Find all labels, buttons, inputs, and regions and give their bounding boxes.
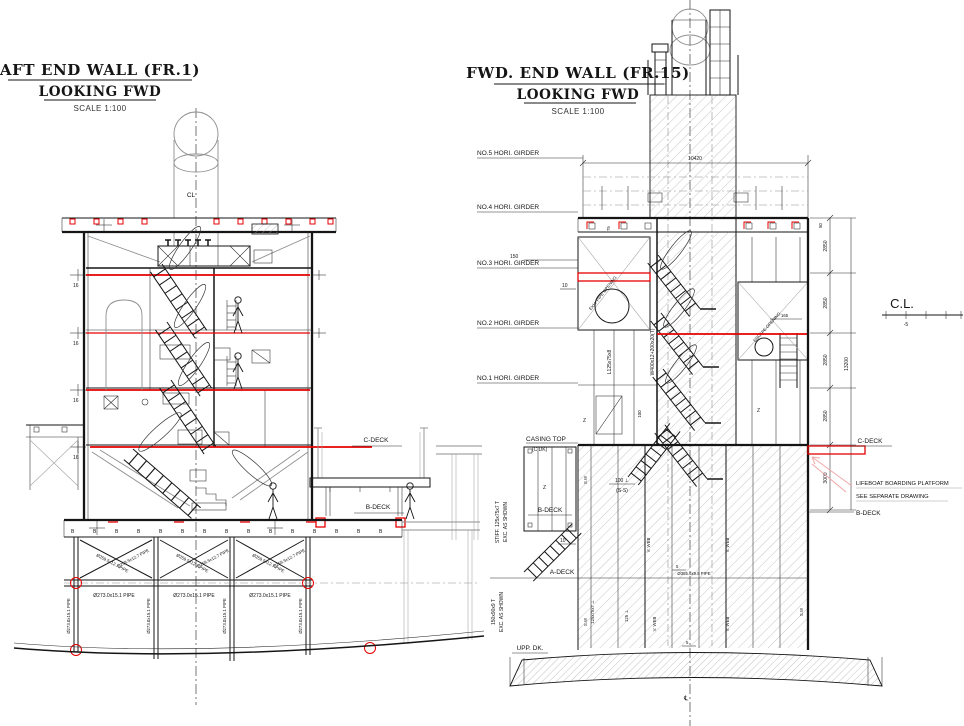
- pipe-label: Ø273.0x15.1 PIPE: [249, 593, 291, 599]
- dim-tier: 2850: [823, 297, 829, 308]
- left-title: AFT END WALL (FR.1): [0, 61, 200, 79]
- dim-100: 100: [637, 410, 642, 418]
- stair-flights: [124, 264, 226, 518]
- casing-top-sub: (C DK): [532, 447, 548, 453]
- plate-thickness: 16: [73, 283, 79, 289]
- left-lower-panel: L125x75x8 W400x12+200x20(T) 100 Z: [583, 328, 656, 445]
- beam-mark: B: [71, 529, 75, 535]
- plate-thickness: 16: [73, 341, 79, 347]
- member-label: V. WEB: [725, 538, 730, 553]
- stiffener-note: EXC. AS SHOWN: [499, 592, 505, 632]
- angle-label: L125x75x8: [607, 350, 613, 375]
- member-label: V. WEB: [646, 538, 651, 553]
- pipe-label: Ø273.0x15.1 PIPE: [146, 598, 151, 634]
- member-label: S.W: [583, 475, 588, 484]
- pipe-label: Ø273.0x15.1 PIPE: [66, 598, 71, 634]
- dim-tier: 2850: [823, 410, 829, 421]
- b-deck-right-label: B-DECK: [856, 510, 881, 517]
- lifeboat-note: LIFEBOAT BOARDING PLATFORM: [856, 481, 949, 487]
- cl-scale-bar: C.L. -5: [882, 296, 963, 328]
- member-label: S.W: [583, 617, 588, 626]
- dim-75: 75: [606, 226, 611, 231]
- aft-end-wall-drawing: AFT END WALL (FR.1) LOOKING FWD SCALE 1:…: [0, 61, 484, 705]
- pipe-label: Ø259.5x12.7 PIPE: [116, 548, 150, 569]
- member-label: V. WEB: [652, 617, 657, 632]
- plate-thickness: 16: [73, 398, 79, 404]
- top-deck-band: [62, 218, 336, 232]
- stiffener-note: EXC. AS SHOWN: [503, 502, 509, 542]
- cl-label: C.L.: [890, 296, 914, 311]
- beam-mark: B: [137, 529, 141, 535]
- b-deck-label: B-DECK: [366, 504, 391, 511]
- dim-50: 50: [818, 223, 823, 228]
- right-title: FWD. END WALL (FR.15): [466, 64, 690, 82]
- beam-mark: B: [247, 529, 251, 535]
- c-deck-callout: C-DECK LIFEBOAT BOARDING PLATFORM SEE SE…: [808, 438, 962, 517]
- dim-150: 150: [510, 254, 519, 260]
- stiffener-note: STIFF. 125x75x7 T: [495, 501, 501, 543]
- band-beam-marks: 75: [587, 222, 800, 231]
- dim-tier: 2850: [823, 240, 829, 251]
- girder-label: NO.3 HORI. GIRDER: [477, 260, 539, 267]
- arched-casing-shape: [106, 300, 142, 390]
- beam-mark: B: [93, 529, 97, 535]
- member-label: S.W: [799, 607, 804, 616]
- web-frame-label: W400x12+200x20(T): [650, 328, 656, 375]
- member-label: 125x75x7 ⊥: [590, 600, 595, 624]
- casing-top-label: CASING TOP: [526, 436, 566, 443]
- beam-mark: B: [313, 529, 317, 535]
- beam-mark: B: [159, 529, 163, 535]
- casing-column-hatched: [657, 232, 736, 445]
- member-label: 125 ⊥: [624, 610, 629, 622]
- pipe-label: Ø259.5x12.7 PIPE: [196, 548, 230, 569]
- left-centerline-label: CL: [187, 192, 196, 199]
- right-scale: SCALE 1:100: [552, 107, 605, 116]
- beam-mark: B: [115, 529, 119, 535]
- hull-line: [14, 631, 484, 654]
- cl-tick-label: -5: [904, 322, 909, 328]
- z-mark: Z: [583, 418, 586, 424]
- beam-mark: B: [335, 529, 339, 535]
- radar-mast: [648, 9, 738, 95]
- person-figure: [233, 297, 243, 333]
- beam-mark: B: [203, 529, 207, 535]
- person-figure: [268, 483, 278, 519]
- beam-mark: B: [291, 529, 295, 535]
- girder-label: NO.1 HORI. GIRDER: [477, 375, 539, 382]
- stiffener-note: 150x90x9 T: [491, 599, 497, 625]
- pipe-label: Ø259.5x12.7 PIPE: [272, 548, 306, 569]
- upp-dk-label: UPP. DK.: [517, 645, 544, 652]
- beam-mark: B: [269, 529, 273, 535]
- girder-label: NO.5 HORI. GIRDER: [477, 150, 539, 157]
- c-deck-right-label: C-DECK: [858, 438, 884, 445]
- pipe-note: Ø355.6x9.5 PIPE: [677, 571, 710, 576]
- beam-mark: B: [379, 529, 383, 535]
- person-figure: [233, 353, 243, 389]
- pipe-label: Ø273.0x15.1 PIPE: [222, 598, 227, 634]
- opening-label: EXH. PIPE OPENING: [588, 274, 618, 311]
- a-deck-label: A-DECK: [550, 569, 575, 576]
- starboard-platform: C-DECK B-DECK: [310, 428, 482, 540]
- beam-mark: B: [181, 529, 185, 535]
- member-label: V. WEB: [725, 617, 730, 632]
- girder-label: NO.2 HORI. GIRDER: [477, 320, 539, 327]
- deckhouse-wall-hatched: [578, 445, 808, 648]
- left-scale: SCALE 1:100: [74, 104, 127, 113]
- beam-mark: B: [357, 529, 361, 535]
- person-figure: [405, 483, 415, 519]
- dim-total: 13200: [844, 357, 850, 371]
- pipe-label: Ø273.0x15.1 PIPE: [298, 598, 303, 634]
- blueprint-sheet: AFT END WALL (FR.1) LOOKING FWD SCALE 1:…: [0, 0, 964, 726]
- note-100: 100 ⊥: [615, 478, 629, 484]
- z-mark: Z: [757, 408, 760, 414]
- beam-mark: B: [225, 529, 229, 535]
- right-subtitle: LOOKING FWD: [517, 87, 640, 103]
- upper-deck-band: [510, 653, 882, 687]
- b-deck-left-label: B-DECK: [538, 507, 563, 514]
- centerline-symbol: ℄: [683, 695, 689, 702]
- lifeboat-note: SEE SEPARATE DRAWING: [856, 494, 929, 500]
- dim-165: 165: [781, 313, 789, 318]
- dim-10: 10: [562, 283, 568, 289]
- drawing-canvas: AFT END WALL (FR.1) LOOKING FWD SCALE 1:…: [0, 0, 964, 726]
- b-deck-band: B B B B B B B B B B B B B B B: [64, 520, 480, 644]
- pipe-label: Ø273.0x15.1 PIPE: [93, 593, 135, 599]
- pipe-label: Ø273.0x15.1 PIPE: [173, 593, 215, 599]
- c-deck-label: C-DECK: [364, 437, 390, 444]
- girder-label: NO.4 HORI. GIRDER: [477, 204, 539, 211]
- fwd-end-wall-drawing: FWD. END WALL (FR.15) LOOKING FWD SCALE …: [466, 0, 963, 726]
- dim-top-width: 10420: [688, 156, 702, 162]
- z-mark: Z: [543, 485, 546, 491]
- dim-tier: 2850: [823, 354, 829, 365]
- dim-10: 10: [560, 538, 566, 544]
- left-subtitle: LOOKING FWD: [39, 84, 162, 100]
- casing-top-callout: CASING TOP (C DK) Z B-DECK 10: [524, 436, 578, 544]
- girder-callouts: NO.5 HORI. GIRDER NO.4 HORI. GIRDER NO.3…: [477, 150, 583, 383]
